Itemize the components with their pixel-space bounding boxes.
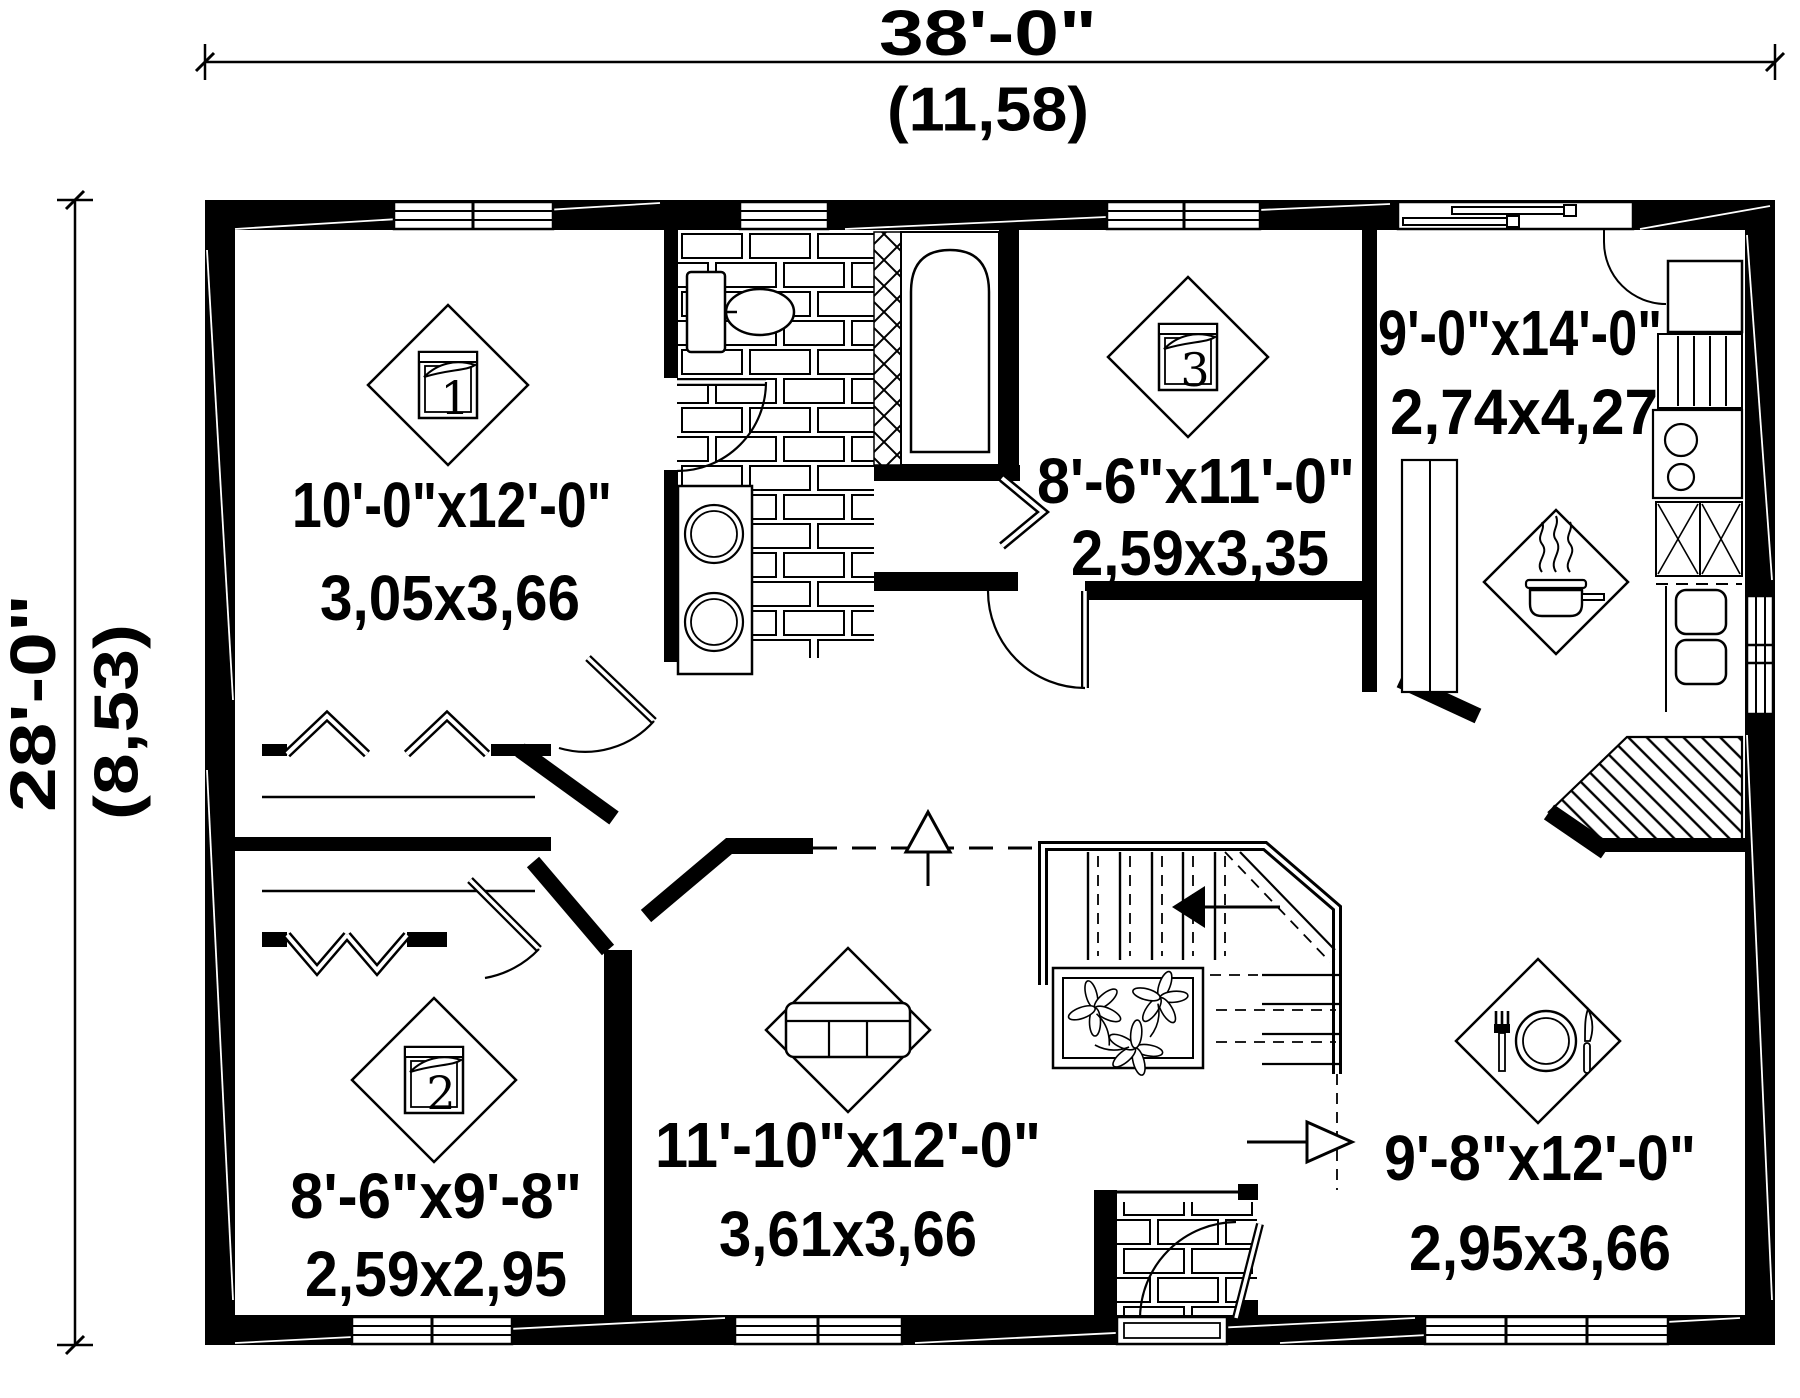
dining-size-metric: 2,95x3,66 bbox=[1409, 1212, 1671, 1284]
overall-width-metric: (11,58) bbox=[887, 76, 1089, 145]
double-sink-vanity-icon bbox=[678, 486, 752, 674]
kitchen-size-metric: 2,74x4,27 bbox=[1390, 376, 1658, 448]
window-living bbox=[735, 1317, 902, 1344]
kitchen-left-counter bbox=[1402, 460, 1457, 692]
overall-depth-metric: (8,53) bbox=[83, 624, 152, 820]
bathtub-icon bbox=[874, 232, 999, 465]
bifold-door-icon-hall-closet bbox=[287, 716, 487, 754]
window-kitchen-sliding bbox=[1398, 202, 1633, 229]
window-bedroom1 bbox=[394, 202, 553, 229]
dimension-top: 38'-0" (11,58) bbox=[196, 0, 1784, 145]
dining-size-imperial: 9'-8"x12'-0" bbox=[1384, 1122, 1696, 1194]
bifold-door-icon-bedroom2-closet bbox=[287, 935, 407, 970]
kitchen-bar-counter bbox=[1549, 737, 1742, 840]
bedroom2-number: 2 bbox=[426, 1066, 455, 1120]
pantry-cabinet bbox=[1658, 334, 1742, 408]
front-door-opening bbox=[1117, 1317, 1227, 1344]
planter-icon bbox=[1053, 962, 1203, 1080]
bedroom1-number: 1 bbox=[440, 371, 469, 425]
living-size-metric: 3,61x3,66 bbox=[719, 1198, 977, 1270]
window-bedroom3 bbox=[1107, 202, 1260, 229]
stove-icon bbox=[1653, 410, 1742, 498]
dimension-left: 28'-0" (8,53) bbox=[0, 191, 152, 1354]
living-size-imperial: 11'-10"x12'-0" bbox=[655, 1109, 1041, 1181]
floor-plan-drawing: 38'-0" (11,58) 28'-0" (8,53) bbox=[0, 0, 1800, 1398]
bedroom3-size-metric: 2,59x3,35 bbox=[1071, 517, 1329, 589]
bed-icon-2: 2 bbox=[352, 998, 516, 1162]
window-bedroom2 bbox=[352, 1317, 512, 1344]
base-cabinet-x bbox=[1656, 502, 1742, 584]
bedroom2-door bbox=[470, 880, 539, 978]
window-dining bbox=[1425, 1317, 1668, 1344]
stair-direction-arrow-icon bbox=[1172, 886, 1280, 928]
overall-depth-imperial: 28'-0" bbox=[0, 594, 69, 812]
bedroom1-size-imperial: 10'-0"x12'-0" bbox=[292, 469, 612, 541]
bedroom1-size-metric: 3,05x3,66 bbox=[320, 562, 580, 634]
bedroom1-door bbox=[559, 658, 654, 752]
window-kitchen-side bbox=[1747, 596, 1773, 714]
overall-width-imperial: 38'-0" bbox=[879, 0, 1097, 69]
cooking-pot-icon bbox=[1484, 510, 1628, 654]
window-bathroom bbox=[740, 202, 828, 229]
kitchen-sink-icon bbox=[1666, 586, 1726, 712]
sofa-icon bbox=[766, 948, 930, 1112]
entry-arrow-icon bbox=[906, 812, 950, 886]
floor-plan: 38'-0" (11,58) 28'-0" (8,53) bbox=[0, 0, 1800, 1398]
bed-icon-3: 3 bbox=[1108, 277, 1268, 437]
bed-icon-1: 1 bbox=[368, 305, 528, 465]
bedroom2-size-imperial: 8'-6"x9'-8" bbox=[290, 1160, 582, 1232]
bedroom2-size-metric: 2,59x2,95 bbox=[305, 1238, 567, 1310]
bedroom3-number: 3 bbox=[1180, 343, 1209, 397]
bedroom3-size-imperial: 8'-6"x11'-0" bbox=[1037, 445, 1355, 517]
bedroom3-door bbox=[988, 591, 1085, 688]
dining-plate-icon bbox=[1456, 959, 1620, 1123]
kitchen-size-imperial: 9'-0"x14'-0" bbox=[1378, 297, 1662, 369]
entry-tile-floor bbox=[1117, 1202, 1257, 1315]
